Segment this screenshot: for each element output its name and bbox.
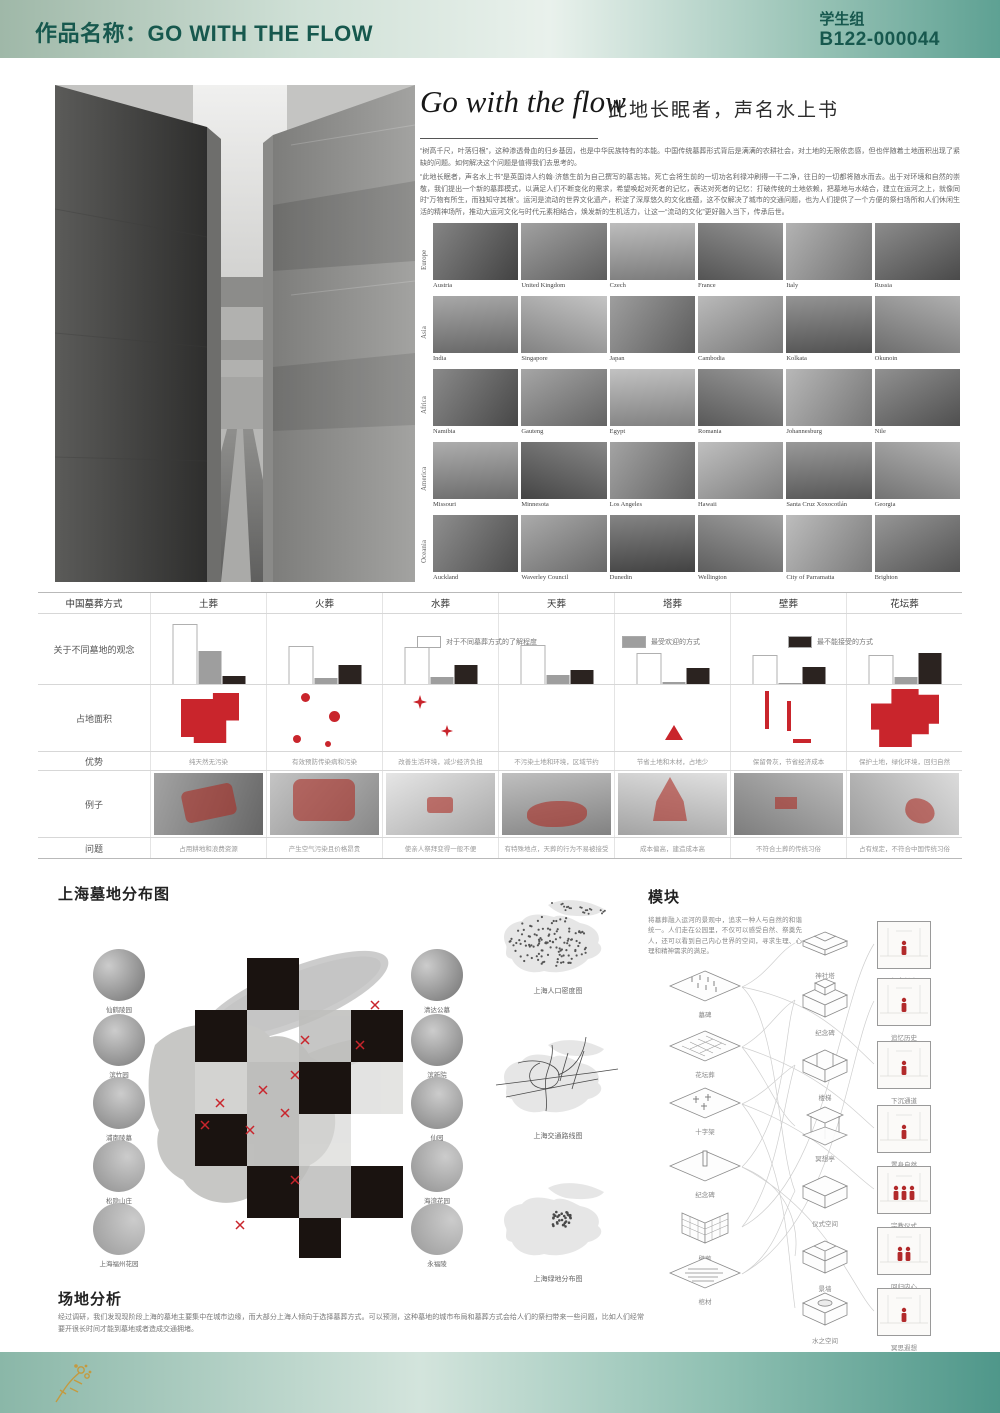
cemetery-photo (786, 442, 871, 499)
cemetery-photo (521, 369, 606, 426)
world-photo-cell: Gauteng (521, 369, 606, 442)
cemetery-site: 海湾花园 (409, 1140, 465, 1205)
cemetery-site: 滨新院 (409, 1014, 465, 1079)
country-label: City of Parramatta (786, 572, 871, 581)
concept-chart-cell (382, 614, 498, 684)
country-label: India (433, 353, 518, 362)
cemetery-photo (875, 223, 960, 280)
country-label: Los Angeles (610, 499, 695, 508)
problem-text: 占用耕地和浪费资源 (151, 838, 266, 858)
title-english: Go with the flow (420, 84, 626, 120)
plate-stones-icon (668, 969, 742, 1008)
cemetery-site: 仙鹤陵园 (91, 949, 147, 1014)
module-scene: 纪念长廊 (876, 921, 932, 985)
module-block: 神社塔 (797, 922, 853, 980)
cemetery-photo (786, 223, 871, 280)
world-photo-cell: Kolkata (786, 296, 871, 369)
burial-table: 中国墓葬方式土葬火葬水葬天葬塔葬壁葬花坛葬关于不同墓地的观念对于不同墓葬方式的了… (38, 592, 962, 859)
burial-method-header: 水葬 (382, 593, 498, 613)
world-photo-cell: Okunoin (875, 296, 960, 369)
country-label: Missouri (433, 499, 518, 508)
country-label: Egypt (610, 426, 695, 435)
scene-sketch (876, 1105, 932, 1158)
module-element-label: 纪念碑 (668, 1189, 742, 1199)
cemetery-site-photo (93, 1014, 145, 1066)
advantage-cell: 保留骨灰，节省经济成本 (730, 752, 846, 770)
country-label: France (698, 280, 783, 289)
advantage-cell: 改善生活环境，减少经济负担 (382, 752, 498, 770)
legend-swatch (788, 636, 812, 648)
burial-method-header: 花坛葬 (846, 593, 962, 613)
advantage-cell: 有效预防传染病和污染 (266, 752, 382, 770)
footer-band: 2022 第九届 紫金奖·建筑及环境设计大赛 The 9th “Zijin Aw… (0, 1352, 1000, 1413)
world-photo-cell: Russia (875, 223, 960, 296)
world-photo-cell: Egypt (610, 369, 695, 442)
cemetery-photo (875, 296, 960, 353)
area-blob-xl (871, 689, 939, 747)
module-element: 纪念碑 (668, 1149, 742, 1199)
country-label: Cambodia (698, 353, 783, 362)
module-element-label: 棺材 (668, 1296, 742, 1306)
module-element: 壁葬 (668, 1207, 742, 1263)
bar-pop (546, 675, 569, 684)
concept-row-label: 关于不同墓地的观念 (38, 614, 150, 684)
module-element: 十字架 (668, 1086, 742, 1136)
country-label: United Kingdom (521, 280, 606, 289)
problem-cell: 有特殊地点，天葬的行为不易被接受 (498, 838, 614, 858)
country-label: Okunoin (875, 353, 960, 362)
slab-L-icon (797, 922, 853, 969)
box-hole-icon (797, 1287, 853, 1334)
example-row: 例子 (38, 770, 962, 837)
bar-group (868, 653, 941, 684)
bar-know (404, 647, 429, 684)
world-photo-cell: Czech (610, 223, 695, 296)
cemetery-photo (433, 369, 518, 426)
cemetery-site: 松隐山庄 (91, 1140, 147, 1205)
cemetery-site-photo (411, 949, 463, 1001)
shanghai-map-mosaic (145, 925, 403, 1275)
country-label: Minnesota (521, 499, 606, 508)
box-L-icon (797, 1235, 853, 1282)
minimap-label-greenspace: 上海绿地分布图 (488, 1274, 628, 1284)
bar-group (404, 647, 477, 684)
chart-legend-item: 最受欢迎的方式 (622, 636, 700, 648)
advantage-text: 改善生活环境，减少经济负担 (383, 752, 498, 770)
world-row: OceaniaAucklandWaverley CouncilDunedinWe… (420, 515, 960, 588)
area-shape-cell (266, 685, 382, 751)
concept-chart-cell (150, 614, 266, 684)
title-divider (420, 138, 598, 139)
burial-method-header: 壁葬 (730, 593, 846, 613)
shanghai-section-heading: 上海墓地分布图 (58, 883, 170, 904)
area-shape-cell (730, 685, 846, 751)
cemetery-site-photo (411, 1077, 463, 1129)
country-label: Waverley Council (521, 572, 606, 581)
bar-bad (802, 667, 825, 684)
bar-group (172, 624, 245, 684)
burial-method-header: 塔葬 (614, 593, 730, 613)
module-block: 水之空间 (797, 1287, 853, 1345)
problem-row: 问题占用耕地和浪费资源产生空气污染且价格昂贵使亲人祭拜变得一般不便有特殊地点，天… (38, 837, 962, 858)
area-shape-cell (846, 685, 962, 751)
cemetery-site-photo (93, 1077, 145, 1129)
cemetery-photo (875, 515, 960, 572)
slab-notch-icon (797, 1044, 853, 1091)
cemetery-photo (521, 515, 606, 572)
zijin-award-logo (48, 1360, 94, 1406)
cemetery-photo (698, 223, 783, 280)
cemetery-photo (433, 515, 518, 572)
entry-info: 学生组 B122-000044 (819, 8, 940, 51)
cemetery-photo (521, 442, 606, 499)
bar-bad (570, 670, 593, 684)
cemetery-site-photo (93, 1140, 145, 1192)
advantage-text: 保留骨灰，节省经济成本 (731, 752, 846, 770)
scene-sketch (876, 978, 932, 1031)
module-block: 仪式空间 (797, 1170, 853, 1228)
legend-label: 最受欢迎的方式 (651, 637, 700, 647)
hero-render-image (55, 85, 415, 582)
concept-chart-cell (614, 614, 730, 684)
scene-sketch (876, 1288, 932, 1341)
cemetery-site: 仙园 (409, 1077, 465, 1142)
cemetery-site-photo (411, 1203, 463, 1255)
bar-group (520, 645, 593, 684)
world-photo-cell: Italy (786, 223, 871, 296)
continent-label: Europe (420, 223, 433, 296)
area-dot (293, 735, 301, 743)
area-row-label: 占地面积 (38, 685, 150, 751)
problem-cell: 占用耕地和浪费资源 (150, 838, 266, 858)
advantage-text: 不污染土地和环境，区域节约 (499, 752, 614, 770)
bar-group (752, 655, 825, 684)
module-block-label: 冥想亭 (797, 1153, 853, 1163)
world-photo-cell: Brighton (875, 515, 960, 588)
legend-swatch (417, 636, 441, 648)
continent-label: Asia (420, 296, 433, 369)
problem-text: 占有规定，不符合中国传统习俗 (847, 838, 962, 858)
country-label: Namibia (433, 426, 518, 435)
area-bar-h (793, 739, 811, 743)
work-title-text: GO WITH THE FLOW (148, 21, 374, 46)
cemetery-site: 浦南陵墓 (91, 1077, 147, 1142)
work-title: 作品名称：GO WITH THE FLOW (35, 16, 373, 48)
shanghai-minimaps (488, 893, 628, 1278)
world-photo-cell: France (698, 223, 783, 296)
cemetery-site: 清达公墓 (409, 949, 465, 1014)
module-scene: 下沉通道 (876, 1041, 932, 1105)
module-scene: 宗教仪式 (876, 1166, 932, 1230)
table-corner-label: 中国墓葬方式 (38, 593, 150, 613)
world-photo-cell: Missouri (433, 442, 518, 515)
canopy-icon (797, 1105, 853, 1152)
module-block-label: 纪念碑 (797, 1027, 853, 1037)
area-bar-v (787, 701, 791, 731)
country-label: Nile (875, 426, 960, 435)
legend-label: 对于不同墓葬方式的了解程度 (446, 637, 537, 647)
plate-crosses-icon (668, 1086, 742, 1125)
example-red-highlight (775, 797, 797, 809)
traffic-route-map (496, 1037, 618, 1112)
module-block: 纪念碑 (797, 979, 853, 1037)
module-scene-label: 下沉通道 (876, 1095, 932, 1105)
problem-text: 产生空气污染且价格昂贵 (267, 838, 382, 858)
population-density-map (504, 900, 606, 972)
cemetery-site-label: 仙鹤陵园 (91, 1004, 147, 1014)
bar-know (868, 655, 893, 684)
world-photo-cell: Romania (698, 369, 783, 442)
bar-bad (686, 668, 709, 684)
intro-paragraph-2: “此地长眠者，声名水上书”是英国诗人约翰·济慈生前为自己撰写的墓志铭。死亡会将生… (420, 172, 960, 218)
cemetery-site-label: 永福陵 (409, 1258, 465, 1268)
area-dot (325, 741, 331, 747)
country-label: Russia (875, 280, 960, 289)
advantage-cell: 不污染土地和环境，区域节约 (498, 752, 614, 770)
cemetery-site-photo (411, 1014, 463, 1066)
scene-sketch (876, 1041, 932, 1094)
continent-label: Africa (420, 369, 433, 442)
minimap-label-traffic: 上海交通路线图 (488, 1131, 628, 1141)
module-block: 冥想亭 (797, 1105, 853, 1163)
module-scene-label: 冥思遐想 (876, 1342, 932, 1352)
problem-cell: 使亲人祭拜变得一般不便 (382, 838, 498, 858)
burial-method-header: 土葬 (150, 593, 266, 613)
area-star (413, 695, 427, 709)
plate-slats-icon (668, 1256, 742, 1295)
example-red-highlight (427, 797, 453, 813)
world-row: AsiaIndiaSingaporeJapanCambodiaKolkataOk… (420, 296, 960, 369)
module-element: 墓碑 (668, 969, 742, 1019)
cemetery-photo (698, 296, 783, 353)
country-label: Gauteng (521, 426, 606, 435)
area-blob (181, 693, 239, 743)
blocks-icon (797, 979, 853, 1026)
country-label: Auckland (433, 572, 518, 581)
concept-chart-cell (498, 614, 614, 684)
modules-section: 模块 将墓葬融入运河的景观中，追求一种人与自然的和谐统一。人们走在公园里，不仅可… (648, 880, 962, 1350)
country-label: Georgia (875, 499, 960, 508)
world-photo-cell: Georgia (875, 442, 960, 515)
area-shape-cell (614, 685, 730, 751)
problem-row-label: 问题 (38, 838, 150, 858)
advantage-cell: 节省土地和木材，占地少 (614, 752, 730, 770)
greenspace-map (504, 1183, 604, 1255)
bar-know (520, 645, 545, 684)
cemetery-photo (698, 442, 783, 499)
cemetery-photo (610, 223, 695, 280)
header-band: 作品名称：GO WITH THE FLOW 学生组 B122-000044 (0, 0, 1000, 58)
area-bar-v (765, 691, 769, 729)
problem-cell: 成本偏高，建造成本高 (614, 838, 730, 858)
example-red-highlight (527, 801, 587, 827)
concept-chart-cell (846, 614, 962, 684)
cemetery-site-label: 上海福州花园 (91, 1258, 147, 1268)
cemetery-photo (610, 442, 695, 499)
example-photo-cell (498, 771, 614, 837)
advantage-text: 纯天然无污染 (151, 752, 266, 770)
cemetery-photo (698, 515, 783, 572)
module-scene: 回归内心 (876, 1227, 932, 1291)
cemetery-photo (610, 296, 695, 353)
world-photo-cell: Wellington (698, 515, 783, 588)
cemetery-site-photo (411, 1140, 463, 1192)
cemetery-site-photo (93, 949, 145, 1001)
cemetery-photo (786, 369, 871, 426)
world-grid: EuropeAustriaUnited KingdomCzechFranceIt… (420, 223, 960, 588)
world-photo-cell: Minnesota (521, 442, 606, 515)
cemetery-site-photo (93, 1203, 145, 1255)
example-photo (850, 773, 959, 835)
scene-sketch (876, 1166, 932, 1219)
world-photo-cell: Austria (433, 223, 518, 296)
world-row: AmericaMissouriMinnesotaLos AngelesHawai… (420, 442, 960, 515)
country-label: Brighton (875, 572, 960, 581)
problem-text: 成本偏高，建造成本高 (615, 838, 730, 858)
advantage-row-label: 优势 (38, 752, 150, 770)
module-element: 花坛葬 (668, 1029, 742, 1079)
area-star (441, 725, 453, 737)
module-element-label: 墓碑 (668, 1009, 742, 1019)
bar-pop (430, 677, 453, 684)
continent-label: Oceania (420, 515, 433, 588)
module-block-label: 仪式空间 (797, 1218, 853, 1228)
country-label: Dunedin (610, 572, 695, 581)
work-title-label: 作品名称： (35, 21, 148, 46)
country-label: Kolkata (786, 353, 871, 362)
country-label: Johannesburg (786, 426, 871, 435)
area-dot (329, 711, 340, 722)
module-block: 景墙 (797, 1235, 853, 1293)
world-photo-cell: Dunedin (610, 515, 695, 588)
cemetery-photo (875, 369, 960, 426)
cemetery-photo (698, 369, 783, 426)
legend-swatch (622, 636, 646, 648)
module-scene: 冥思遐想 (876, 1288, 932, 1352)
scene-sketch (876, 1227, 932, 1280)
problem-text: 使亲人祭拜变得一般不便 (383, 838, 498, 858)
world-photo-cell: Namibia (433, 369, 518, 442)
chart-legend-item: 对于不同墓葬方式的了解程度 (417, 636, 537, 648)
cemetery-site: 永福陵 (409, 1203, 465, 1268)
example-photo-cell (382, 771, 498, 837)
cemetery-photo (875, 442, 960, 499)
bar-bad (222, 676, 245, 684)
bar-bad (454, 665, 477, 684)
chart-legend-item: 最不能接受的方式 (788, 636, 873, 648)
bar-bad (918, 653, 941, 684)
legend-label: 最不能接受的方式 (817, 637, 873, 647)
world-photo-cell: Singapore (521, 296, 606, 369)
example-row-label: 例子 (38, 771, 150, 837)
world-photo-cell: Johannesburg (786, 369, 871, 442)
area-shape-cell (382, 685, 498, 751)
advantage-row: 优势纯天然无污染有效预防传染病和污染改善生活环境，减少经济负担不污染土地和环境，… (38, 751, 962, 770)
area-row: 占地面积 (38, 684, 962, 751)
corridor-render-art (55, 85, 415, 582)
cemetery-photo (610, 369, 695, 426)
world-photo-cell: India (433, 296, 518, 369)
site-analysis-heading: 场地分析 (58, 1288, 122, 1309)
world-photo-cell: Nile (875, 369, 960, 442)
concept-chart-cell (730, 614, 846, 684)
cemetery-photo (610, 515, 695, 572)
cemetery-site: 上海福州花园 (91, 1203, 147, 1268)
title-chinese: 此地长眠者，声名水上书 (608, 95, 839, 122)
world-photo-cell: Los Angeles (610, 442, 695, 515)
problem-cell: 不符合土葬的传统习俗 (730, 838, 846, 858)
area-shape-cell (498, 685, 614, 751)
box-icon (797, 1170, 853, 1217)
bar-know (172, 624, 197, 684)
cemetery-photo (786, 515, 871, 572)
advantage-text: 有效预防传染病和污染 (267, 752, 382, 770)
module-block-label: 楼梯 (797, 1092, 853, 1102)
advantage-cell: 保护土地，绿化环境，回归自然 (846, 752, 962, 770)
country-label: Japan (610, 353, 695, 362)
bar-know (288, 646, 313, 684)
cemetery-site-label: 清达公墓 (409, 1004, 465, 1014)
example-photo-cell (846, 771, 962, 837)
corner-wall-icon (668, 1207, 742, 1252)
problem-cell: 产生空气污染且价格昂贵 (266, 838, 382, 858)
bar-bad (338, 665, 361, 684)
country-label: Wellington (698, 572, 783, 581)
burial-method-header: 天葬 (498, 593, 614, 613)
bar-know (752, 655, 777, 684)
advantage-text: 保护土地，绿化环境，回归自然 (847, 752, 962, 770)
world-photo-cell: Waverley Council (521, 515, 606, 588)
entry-code: B122-000044 (819, 29, 940, 51)
example-red-highlight (293, 779, 355, 821)
example-photo-cell (730, 771, 846, 837)
world-photo-cell: Hawaii (698, 442, 783, 515)
area-shape-cell (150, 685, 266, 751)
advantage-text: 节省土地和木材，占地少 (615, 752, 730, 770)
module-block-label: 水之空间 (797, 1335, 853, 1345)
world-photo-cell: Auckland (433, 515, 518, 588)
country-label: Austria (433, 280, 518, 289)
advantage-cell: 纯天然无污染 (150, 752, 266, 770)
cemetery-photo (521, 223, 606, 280)
bar-group (288, 646, 361, 684)
competition-poster: 作品名称：GO WITH THE FLOW 学生组 B122-000044 (0, 0, 1000, 1413)
example-photo-cell (266, 771, 382, 837)
world-row: AfricaNamibiaGautengEgyptRomaniaJohannes… (420, 369, 960, 442)
world-photo-cell: City of Parramatta (786, 515, 871, 588)
module-element: 棺材 (668, 1256, 742, 1306)
country-label: Singapore (521, 353, 606, 362)
problem-text: 不符合土葬的传统习俗 (731, 838, 846, 858)
scene-sketch (876, 921, 932, 974)
world-photo-cell: Santa Cruz Xoxocotlán (786, 442, 871, 515)
bar-pop (198, 651, 221, 684)
area-triangle (665, 725, 683, 740)
plate-bricks-icon (668, 1029, 742, 1068)
module-block: 楼梯 (797, 1044, 853, 1102)
bar-group (636, 653, 709, 684)
country-label: Hawaii (698, 499, 783, 508)
continent-label: America (420, 442, 433, 515)
country-label: Czech (610, 280, 695, 289)
cemetery-site: 滨竹园 (91, 1014, 147, 1079)
example-photo-cell (614, 771, 730, 837)
module-element-label: 花坛葬 (668, 1069, 742, 1079)
bar-know (636, 653, 661, 684)
world-photo-cell: Cambodia (698, 296, 783, 369)
concept-row: 关于不同墓地的观念对于不同墓葬方式的了解程度最受欢迎的方式最不能接受的方式 (38, 613, 962, 684)
module-scene: 追忆历史 (876, 978, 932, 1042)
